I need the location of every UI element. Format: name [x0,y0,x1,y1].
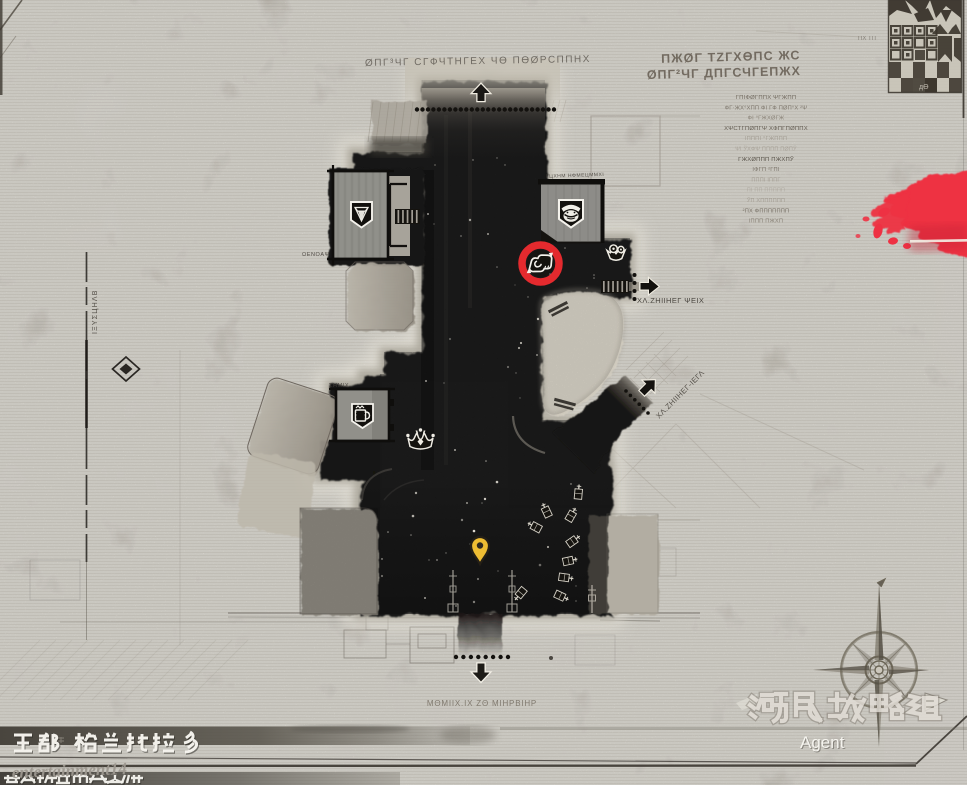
svg-text:ΣΗΜΙΧ: ΣΗΜΙΧ [329,383,349,389]
svg-text:ІППП ПЖΧП: ІППП ПЖΧП [749,219,783,225]
svg-text:²ПΧ ФППППППП: ²ПΧ ФППППППП [743,208,790,214]
svg-text:ΧΨСТΓПØПΓΨ ΧФПΓПØППΧ: ΧΨСТΓПØПΓΨ ΧФПΓПØППΧ [724,126,808,132]
svg-text:ΙΞΥΣЦΗΛΒ: ΙΞΥΣЦΗΛΒ [92,289,99,334]
svg-text:ПІ ПП ППППП: ПІ ПП ППППП [747,188,785,194]
svg-text:ΓЖΧØППП ПЖΧПЎ: ΓЖΧØППП ПЖΧПЎ [738,155,794,163]
svg-text:дӨ: дӨ [919,84,929,91]
svg-text:ΓПІФØΓППΧ ΨΓЖПП: ΓПІФØΓППΧ ΨΓЖПП [736,95,797,101]
svg-text:ФІ °ΓЖΧØΓЖ: ФІ °ΓЖΧØΓЖ [748,116,785,122]
svg-text:ΩΕΝΟΑΨ: ΩΕΝΟΑΨ [302,252,330,258]
svg-text:entertainment14: entertainment14 [11,759,127,782]
svg-text:ФΓ·ЖΧ°ΧПП ФІ ΓФ ПØП°Χ ²Ψ: ФΓ·ЖΧ°ΧПП ФІ ΓФ ПØП°Χ ²Ψ [725,105,807,111]
svg-text:ІПППІ °ΓЖППП: ІПППІ °ΓЖППП [745,136,787,142]
svg-text:Agent: Agent [800,733,845,752]
svg-text:ПΧ ТП: ПΧ ТП [858,36,876,42]
svg-text:ΧΛ.ΖΗІІΗΕΓ ΨΕІΧ: ΧΛ.ΖΗІІΗΕΓ ΨΕІΧ [637,296,704,305]
svg-text:ΨІ ЎΧФΨ ПППП ПØПЎ: ΨІ ЎΧФΨ ПППП ПØПЎ [735,145,797,153]
svg-text:ЎП ΧПППППП: ЎП ΧПППППП [747,196,785,204]
svg-text:ПППІ ІППΓ: ПППІ ІППΓ [751,177,780,183]
svg-text:ΜΘΜІІΧ.ІΧ ΖΘ ΜІΗРΒІΗР: ΜΘΜІІΧ.ІΧ ΖΘ ΜІΗРΒІΗР [427,699,537,708]
svg-text:ІФΓП ²ΓПІ: ІФΓП ²ΓПІ [752,167,779,173]
